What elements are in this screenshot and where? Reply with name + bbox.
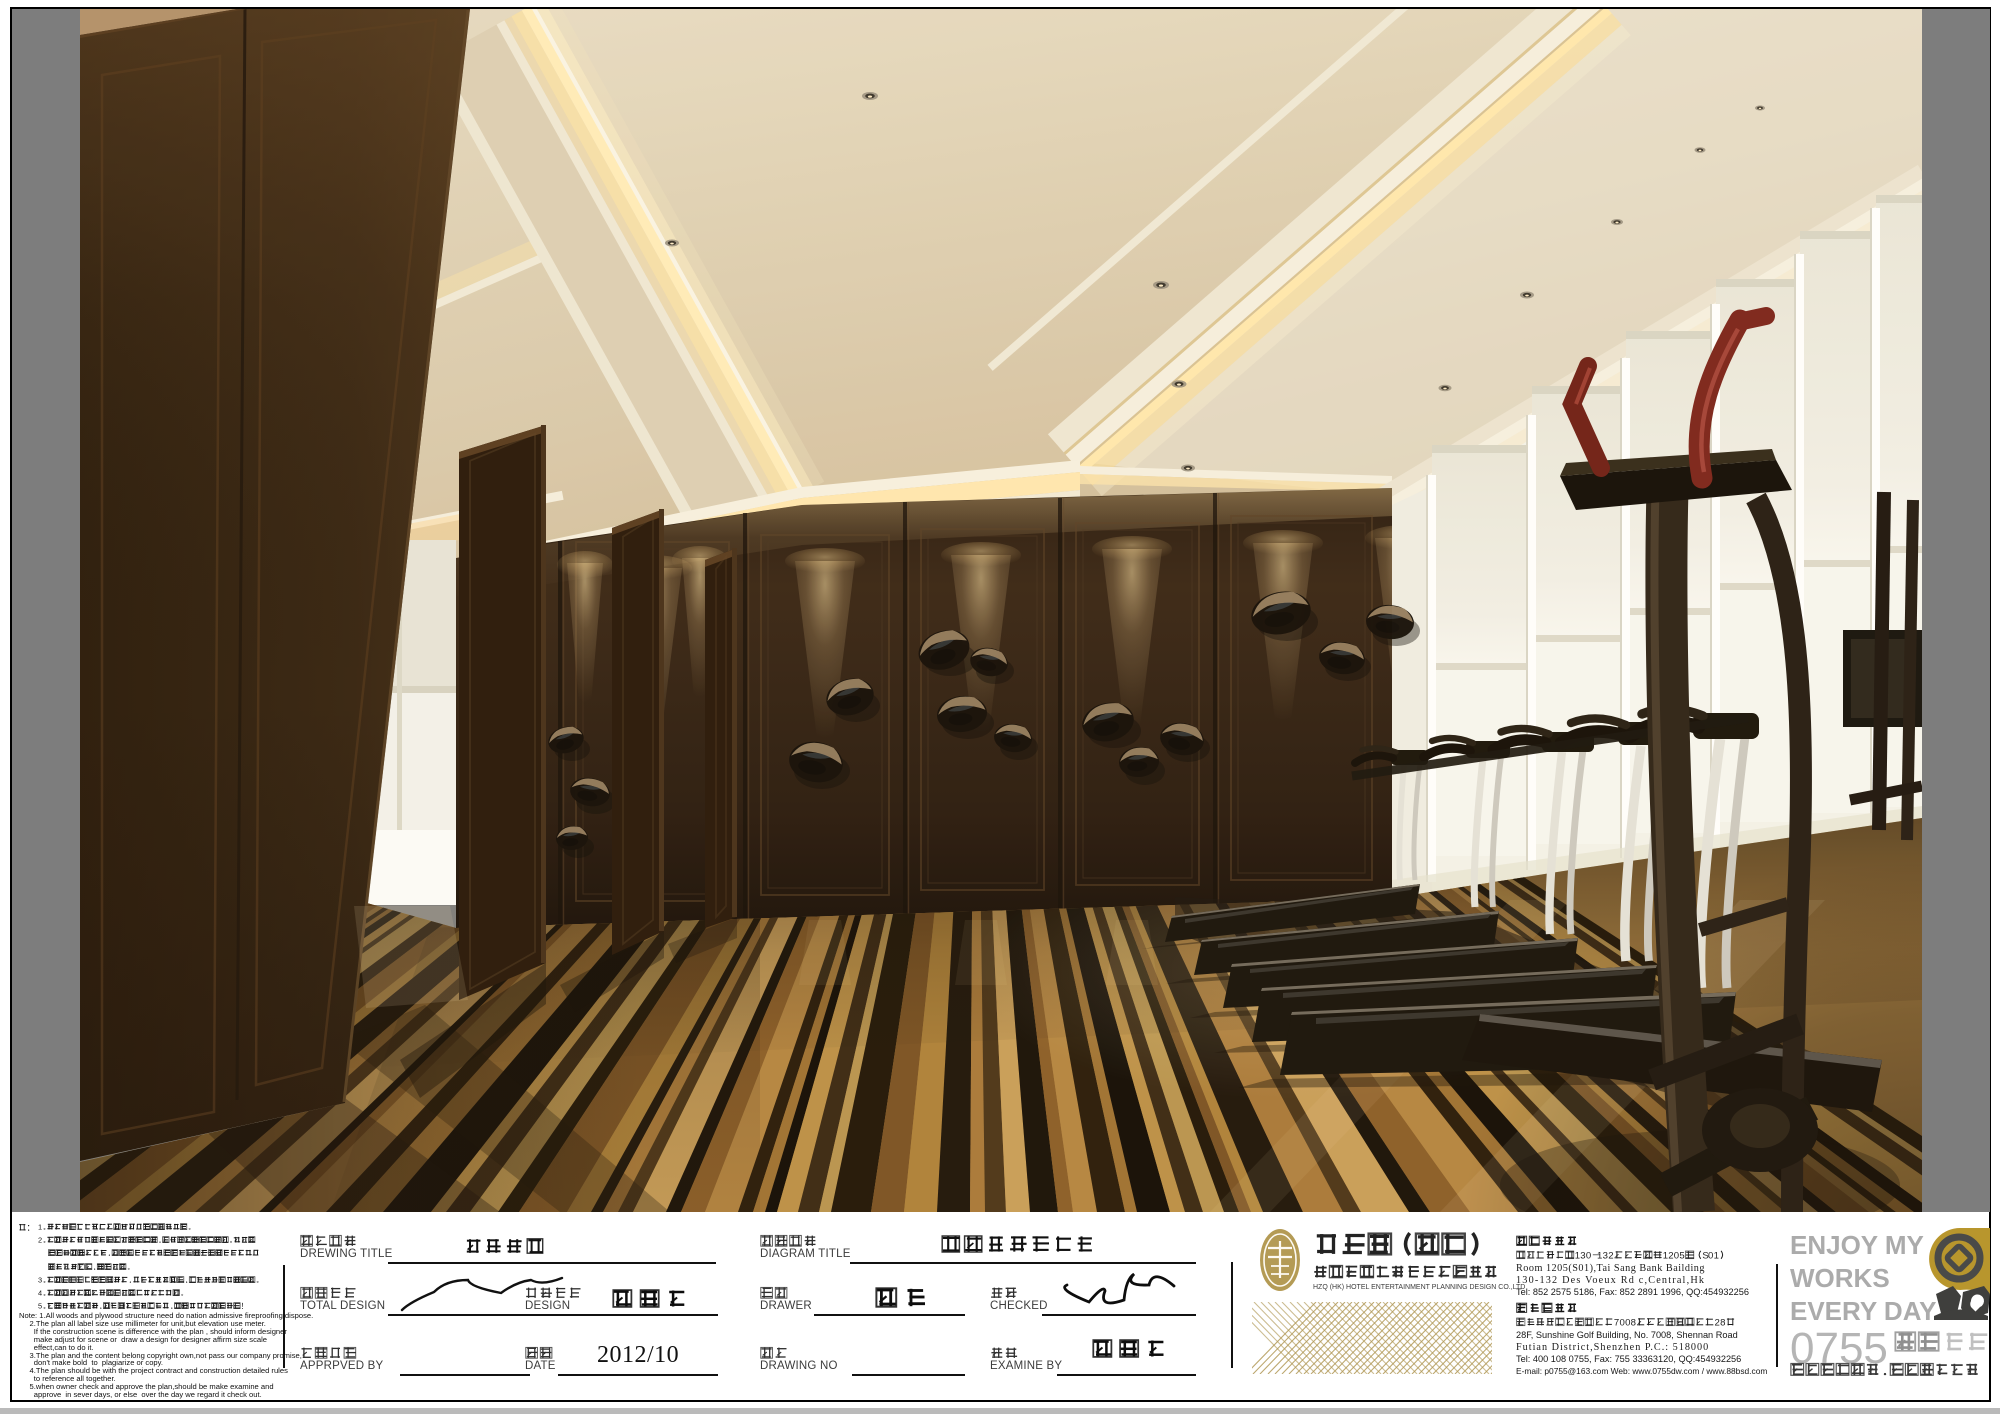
svg-text:0: 0	[1708, 1250, 1713, 1261]
svg-text:5: 5	[1679, 1250, 1684, 1261]
svg-text:1: 1	[1663, 1250, 1668, 1261]
svg-text:2: 2	[1715, 1317, 1720, 1328]
svg-text:8: 8	[1720, 1317, 1725, 1328]
svg-text:1: 1	[1597, 1250, 1602, 1261]
svg-text:3: 3	[1580, 1250, 1585, 1261]
svg-text:2: 2	[1608, 1250, 1613, 1261]
svg-text:0: 0	[1586, 1250, 1591, 1261]
svg-text:7: 7	[1614, 1317, 1619, 1328]
svg-text:0: 0	[1620, 1317, 1625, 1328]
svg-text:8: 8	[1631, 1317, 1636, 1328]
svg-text:3: 3	[1603, 1250, 1608, 1261]
svg-text:0: 0	[1674, 1250, 1679, 1261]
svg-text:1: 1	[1714, 1250, 1719, 1261]
